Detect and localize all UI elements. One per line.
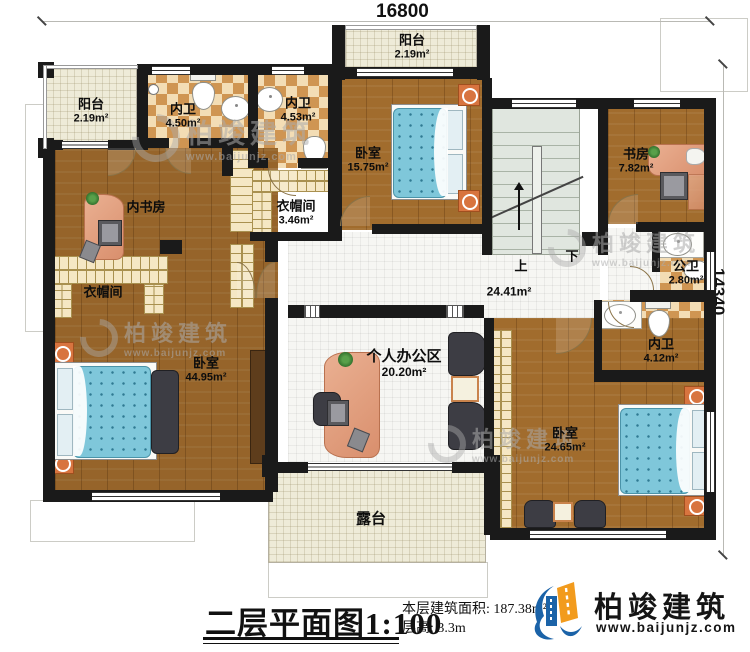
room-name: 内书房 bbox=[126, 200, 165, 215]
floor-area-label: 本层建筑面积: bbox=[402, 602, 490, 617]
bed-bench bbox=[151, 370, 179, 454]
toilet-tank bbox=[645, 301, 671, 309]
window bbox=[706, 412, 715, 492]
side-table bbox=[553, 502, 573, 522]
wall bbox=[464, 305, 484, 318]
stair-direction-arrow bbox=[518, 186, 520, 230]
floor-height-label: 层高: bbox=[402, 621, 434, 636]
wall bbox=[145, 138, 169, 148]
computer-monitor bbox=[327, 400, 349, 426]
room-label-bedroom-right: 卧室 24.65m² bbox=[545, 427, 586, 454]
brand-website: www.baijunjz.com bbox=[596, 620, 737, 635]
floor-height-value: 3.3m bbox=[437, 621, 465, 636]
room-label-office: 个人办公区 20.20m² bbox=[366, 349, 441, 379]
room-label-bedroom-top: 卧室 15.75m² bbox=[348, 147, 389, 174]
room-area: 7.82m² bbox=[619, 162, 654, 174]
room-name: 卧室 bbox=[193, 356, 219, 371]
down-text: 下 bbox=[565, 249, 578, 264]
room-name: 卧室 bbox=[355, 146, 381, 161]
sink bbox=[256, 87, 283, 112]
desk-lamp bbox=[686, 148, 706, 165]
computer-monitor bbox=[660, 172, 688, 200]
stair-arrow-head bbox=[514, 182, 524, 190]
wall bbox=[582, 232, 600, 246]
room-label-bath-b: 内卫 4.53m² bbox=[281, 97, 316, 124]
room-name: 公卫 bbox=[673, 259, 699, 274]
wall bbox=[222, 140, 233, 176]
room-area: 44.95m² bbox=[186, 371, 227, 383]
room-label-closet-top: 衣帽间 3.46m² bbox=[276, 200, 315, 227]
master-closet-wardrobe bbox=[50, 256, 168, 284]
up-text: 上 bbox=[514, 259, 527, 274]
room-area: 4.53m² bbox=[281, 111, 316, 123]
nightstand bbox=[458, 84, 480, 106]
window bbox=[62, 141, 108, 149]
wall bbox=[636, 222, 704, 232]
window bbox=[530, 530, 666, 539]
wall bbox=[262, 462, 308, 473]
wall bbox=[484, 318, 494, 462]
wall bbox=[320, 305, 446, 318]
brand-logo-icon bbox=[524, 576, 588, 644]
armchair bbox=[524, 500, 556, 528]
balcony-railing bbox=[43, 65, 138, 69]
room-area: 24.65m² bbox=[545, 441, 586, 453]
room-area: 2.19m² bbox=[395, 48, 430, 60]
plant bbox=[86, 192, 99, 205]
nightstand bbox=[458, 190, 480, 212]
armchair bbox=[448, 402, 486, 450]
room-name: 内卫 bbox=[170, 102, 196, 117]
logo-swoosh-bottom bbox=[560, 626, 582, 636]
roof-outline bbox=[268, 562, 488, 598]
plan-title-text: 二层平面图 bbox=[205, 606, 365, 641]
window bbox=[272, 66, 304, 75]
room-label-study: 书房 7.82m² bbox=[619, 148, 654, 175]
room-name: 书房 bbox=[623, 147, 649, 162]
room-area: 20.20m² bbox=[366, 366, 441, 379]
sink bbox=[663, 233, 692, 256]
master-closet-side bbox=[144, 284, 164, 314]
room-name: 阳台 bbox=[399, 33, 425, 48]
room-name: 卧室 bbox=[552, 426, 578, 441]
wall bbox=[484, 455, 500, 535]
stair-rail bbox=[532, 146, 542, 254]
room-area: 4.12m² bbox=[644, 352, 679, 364]
roof-outline bbox=[30, 500, 195, 542]
room-area: 24.41m² bbox=[487, 284, 532, 298]
window bbox=[92, 492, 220, 501]
window bbox=[634, 99, 680, 108]
wall bbox=[652, 232, 660, 272]
stairs-down-label: 下 bbox=[565, 250, 578, 265]
brand-logo bbox=[524, 576, 588, 644]
wall bbox=[372, 224, 484, 234]
room-name: 内卫 bbox=[285, 96, 311, 111]
room-name: 内卫 bbox=[648, 337, 674, 352]
wall bbox=[288, 305, 304, 318]
room-name: 个人办公区 bbox=[366, 348, 441, 365]
room-area: 15.75m² bbox=[348, 161, 389, 173]
room-area: 3.46m² bbox=[276, 214, 315, 226]
wall bbox=[265, 240, 278, 262]
floor-plan: 16800 14340 bbox=[0, 0, 750, 652]
window bbox=[357, 68, 453, 77]
wall bbox=[189, 138, 253, 148]
window bbox=[152, 66, 190, 75]
sliding-door bbox=[308, 463, 452, 471]
stairs-up-label: 上 bbox=[514, 260, 527, 275]
wall bbox=[43, 148, 55, 502]
room-name: 露台 bbox=[356, 511, 386, 528]
room-name: 阳台 bbox=[78, 97, 104, 112]
roof-outline bbox=[660, 18, 748, 92]
room-name: 衣帽间 bbox=[83, 285, 122, 300]
pocket-door bbox=[446, 305, 464, 318]
wall bbox=[248, 64, 258, 168]
window bbox=[512, 99, 576, 108]
shower-head bbox=[148, 84, 159, 95]
balcony-railing bbox=[345, 25, 477, 30]
hall-area-label: 24.41m² bbox=[487, 285, 532, 298]
window bbox=[706, 252, 715, 290]
wall bbox=[630, 290, 714, 302]
room-label-closet-master: 衣帽间 bbox=[83, 286, 122, 301]
dimension-width: 16800 bbox=[376, 1, 429, 23]
room-area: 2.80m² bbox=[669, 274, 704, 286]
room-label-public-bath: 公卫 2.80m² bbox=[669, 260, 704, 287]
side-table bbox=[451, 376, 479, 402]
room-label-bath-c: 内卫 4.12m² bbox=[644, 338, 679, 365]
plant bbox=[338, 352, 353, 367]
room-label-balcony-top: 阳台 2.19m² bbox=[395, 34, 430, 61]
room-label-inner-study: 内书房 bbox=[126, 201, 165, 216]
master-closet-side bbox=[52, 284, 72, 318]
room-name: 衣帽间 bbox=[276, 199, 315, 214]
armchair bbox=[448, 332, 486, 376]
wall bbox=[452, 462, 486, 473]
room-label-terrace: 露台 bbox=[356, 512, 386, 529]
room-area: 2.19m² bbox=[74, 112, 109, 124]
wall bbox=[250, 158, 268, 168]
pocket-door bbox=[304, 305, 320, 318]
room-label-master-bedroom: 卧室 44.95m² bbox=[186, 357, 227, 384]
balcony-railing bbox=[43, 65, 47, 149]
room-label-bath-a: 内卫 4.50m² bbox=[166, 103, 201, 130]
logo-tower-orange bbox=[557, 582, 578, 623]
wall bbox=[250, 232, 342, 241]
wall bbox=[160, 240, 182, 254]
pillow bbox=[447, 110, 463, 150]
armchair bbox=[574, 500, 606, 528]
pillow bbox=[447, 154, 463, 194]
pillow bbox=[57, 368, 73, 410]
title-underline bbox=[203, 637, 399, 640]
bed-sheet bbox=[676, 408, 690, 492]
pillow bbox=[57, 414, 73, 456]
title-underline bbox=[203, 643, 399, 644]
computer-monitor bbox=[98, 220, 122, 246]
sink bbox=[221, 96, 250, 121]
wall bbox=[328, 64, 342, 240]
wall bbox=[594, 300, 602, 372]
bed-sheet bbox=[434, 108, 448, 196]
room-label-balcony-left: 阳台 2.19m² bbox=[74, 98, 109, 125]
wall bbox=[594, 370, 714, 382]
room-area: 4.50m² bbox=[166, 117, 201, 129]
